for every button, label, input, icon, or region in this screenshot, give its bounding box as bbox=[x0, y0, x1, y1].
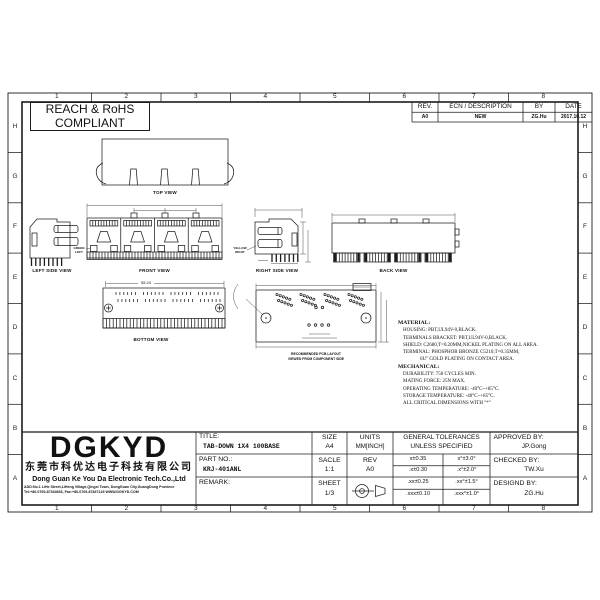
row-label-left: C bbox=[13, 376, 18, 383]
top-view-label: TOP VIEW bbox=[153, 191, 177, 196]
top-view-drawing bbox=[96, 139, 234, 185]
row-label-left: F bbox=[13, 224, 17, 231]
row-label-right: C bbox=[583, 376, 588, 383]
by-header: BY bbox=[535, 104, 544, 110]
third-angle-projection-icon bbox=[352, 485, 385, 498]
sheet-value: 1/3 bbox=[325, 491, 334, 498]
tolerance-cell: x±0.35 bbox=[410, 457, 427, 463]
back-view-drawing bbox=[332, 213, 459, 262]
column-label-bottom: 5 bbox=[333, 506, 337, 513]
designed-by-value: ZG.Hu bbox=[524, 491, 543, 498]
row-label-right: B bbox=[583, 426, 587, 433]
mechanical-line: MATING FORCE: 25N MAX. bbox=[398, 378, 538, 385]
sheet-label: SHEET bbox=[318, 481, 341, 488]
date-value: 2017.10.12 bbox=[561, 115, 586, 120]
led-green bbox=[192, 246, 199, 252]
mechanical-line: DURABILITY: 750 CYCLES MIN. bbox=[398, 371, 538, 378]
company-logo: DGKYD bbox=[50, 433, 168, 463]
compliance-line2: COMPLIANT bbox=[55, 117, 125, 131]
row-label-left: A bbox=[13, 476, 17, 483]
column-label-bottom: 7 bbox=[472, 506, 476, 513]
yellow-led-label-line2: RIGHT bbox=[235, 251, 245, 254]
tolerance-header-line1: GENERAL TOLERANCES bbox=[403, 435, 479, 442]
tolerance-cell: .xxx±0.10 bbox=[406, 492, 430, 498]
tolerance-cell: x°±3.0° bbox=[457, 457, 475, 463]
front-view-drawing bbox=[86, 204, 222, 260]
row-label-left: H bbox=[13, 124, 18, 131]
designed-by-label: DESIGND BY: bbox=[494, 481, 537, 488]
bottom-view-drawing bbox=[103, 281, 225, 328]
size-value: A4 bbox=[325, 444, 333, 451]
tolerance-cell: .xx±0.25 bbox=[407, 480, 428, 486]
column-label-top: 6 bbox=[402, 94, 406, 101]
scale-value: 1:1 bbox=[325, 467, 334, 474]
mechanical-line: OPERATING TEMPERATURE: -40°C~+85°C. bbox=[398, 386, 538, 393]
part-no-label: PART NO.: bbox=[199, 457, 232, 464]
column-label-top: 1 bbox=[55, 94, 59, 101]
company-name-en: Dong Guan Ke You Da Electronic Tech.Co.,… bbox=[32, 476, 186, 483]
row-label-right: F bbox=[583, 224, 587, 231]
row-label-right: E bbox=[583, 275, 587, 282]
company-name-cn: 东莞市科优达电子科技有限公司 bbox=[25, 463, 193, 473]
rev-label: REV bbox=[363, 458, 377, 465]
line-art bbox=[0, 0, 600, 600]
rev-value-titleblock: A0 bbox=[366, 467, 374, 474]
mechanical-title: MECHANICAL: bbox=[398, 364, 538, 371]
title-value: TAB-DOWN 1X4 100BASE bbox=[203, 444, 280, 450]
material-line: TERMINAL: PHOSPHOR BRONZE C5210,T=0.35MM… bbox=[398, 349, 538, 356]
led-green bbox=[124, 246, 131, 252]
checked-by-value: TW.Xu bbox=[524, 467, 544, 474]
pcb-caption-line1: RECOMMENDED PCB LAYOUT bbox=[291, 353, 341, 356]
row-label-right: D bbox=[583, 325, 588, 332]
material-line: TERMINALS BRACKET: PBT,UL94V-0,BLACK. bbox=[398, 335, 538, 342]
led-yellow bbox=[145, 246, 152, 252]
scale-label: SACLE bbox=[318, 458, 340, 465]
date-header: DATE bbox=[565, 104, 582, 110]
tolerance-cell: .x°±2.0° bbox=[457, 468, 477, 474]
tolerance-header-line2: UNLESS SPECIFIED bbox=[410, 444, 472, 451]
material-line: SHIELD: C2680,T=0.20MM,NICKEL PLATING ON… bbox=[398, 342, 538, 349]
ecn-value: NEW bbox=[475, 115, 487, 120]
column-label-top: 2 bbox=[124, 94, 128, 101]
led-green bbox=[158, 246, 165, 252]
row-label-right: G bbox=[582, 174, 587, 181]
column-label-bottom: 8 bbox=[541, 506, 545, 513]
approved-by-value: JP.Gong bbox=[522, 444, 546, 451]
mechanical-line: STORAGE TEMPERATURE: -40°C~+85°C. bbox=[398, 393, 538, 400]
bottom-view-dimension: 55.24 bbox=[141, 281, 151, 285]
ecn-header: ECN / DESCRIPTION bbox=[449, 104, 512, 110]
tolerance-cell: .xx°±1.5° bbox=[455, 480, 477, 486]
row-label-left: E bbox=[13, 275, 17, 282]
approved-by-label: APPROVED BY: bbox=[494, 435, 544, 442]
checked-by-label: CHECKED BY: bbox=[494, 458, 540, 465]
compliance-line1: REACH & RoHS bbox=[46, 103, 135, 117]
column-label-bottom: 3 bbox=[194, 506, 198, 513]
right-side-view-label: RIGHT SIDE VIEW bbox=[256, 269, 298, 274]
row-label-left: B bbox=[13, 426, 17, 433]
size-label: SIZE bbox=[322, 435, 337, 442]
column-label-top: 3 bbox=[194, 94, 198, 101]
compliance-box: REACH & RoHS COMPLIANT bbox=[30, 102, 150, 131]
pcb-caption-line2: VIEWED FROM COMPONENT SIDE bbox=[288, 358, 344, 361]
units-value: MM[INCH] bbox=[356, 444, 385, 450]
back-view-label: BACK VIEW bbox=[379, 269, 407, 274]
left-side-view-drawing bbox=[30, 219, 78, 266]
row-label-right: A bbox=[583, 476, 587, 483]
material-title: MATERIAL: bbox=[398, 320, 538, 327]
column-label-bottom: 4 bbox=[263, 506, 267, 513]
led-green bbox=[91, 246, 98, 252]
column-label-bottom: 6 bbox=[402, 506, 406, 513]
green-led-label-line2: LEFT bbox=[75, 251, 83, 254]
column-label-top: 5 bbox=[333, 94, 337, 101]
row-label-left: D bbox=[13, 325, 18, 332]
material-line: 6U" GOLD PLATING ON CONTACT AREA. bbox=[398, 356, 538, 363]
units-label: UNITS bbox=[360, 435, 380, 442]
title-label: TITLE: bbox=[199, 434, 219, 441]
rev-header: REV. bbox=[418, 104, 432, 110]
column-label-bottom: 1 bbox=[55, 506, 59, 513]
remark-label: REMARK: bbox=[199, 480, 230, 487]
tolerance-cell: .xxx°±1.0° bbox=[454, 492, 479, 498]
row-label-left: G bbox=[12, 174, 17, 181]
column-label-top: 8 bbox=[541, 94, 545, 101]
rev-value: A0 bbox=[422, 115, 428, 120]
material-notes: MATERIAL: HOUSING: PBT,UL94V-0,BLACK. TE… bbox=[398, 320, 538, 408]
tolerance-cell: .x±0.30 bbox=[409, 468, 427, 474]
drawing-sheet: REACH & RoHS COMPLIANT REV. ECN / DESCRI… bbox=[0, 0, 600, 600]
column-label-top: 7 bbox=[472, 94, 476, 101]
led-yellow bbox=[212, 246, 219, 252]
column-label-bottom: 2 bbox=[124, 506, 128, 513]
company-contact: Tel:+86-0769-87334666, Fax:+86-0769-8784… bbox=[24, 491, 139, 495]
led-yellow bbox=[178, 246, 185, 252]
front-view-label: FRONT VIEW bbox=[139, 269, 170, 274]
material-line: HOUSING: PBT,UL94V-0,BLACK. bbox=[398, 327, 538, 334]
led-yellow bbox=[111, 246, 118, 252]
bottom-view-label: BOTTOM VIEW bbox=[133, 338, 168, 343]
row-label-right: H bbox=[583, 124, 588, 131]
by-value: ZG.Hu bbox=[532, 115, 547, 120]
part-no-value: KRJ-401ANL bbox=[203, 467, 241, 473]
column-label-top: 4 bbox=[263, 94, 267, 101]
mechanical-line: ALL CRITICAL DIMENSIONS WITH "*" bbox=[398, 400, 538, 407]
right-side-view-drawing bbox=[247, 208, 311, 264]
pcb-layout-drawing bbox=[234, 284, 390, 349]
left-side-view-label: LEFT SIDE VIEW bbox=[32, 269, 71, 274]
